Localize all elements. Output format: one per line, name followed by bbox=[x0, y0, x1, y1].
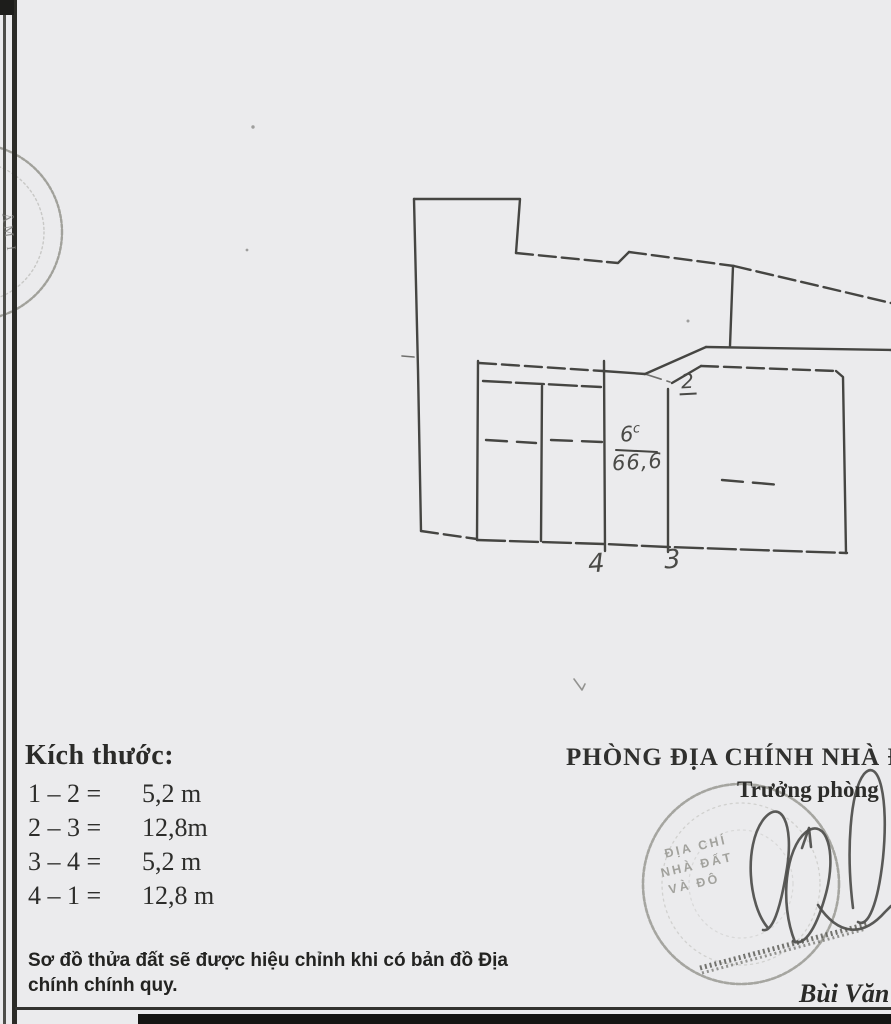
correction-note: Sơ đồ thửa đất sẽ được hiệu chỉnh khi có… bbox=[28, 948, 520, 998]
dimension-row: 2 – 3 = 12,8m bbox=[28, 813, 214, 847]
dimension-value: 5,2 m bbox=[142, 847, 201, 877]
dimension-points: 1 – 2 = bbox=[28, 779, 120, 809]
dimensions-list: 1 – 2 = 5,2 m 2 – 3 = 12,8m 3 – 4 = 5,2 … bbox=[28, 779, 214, 915]
parcel-number-label: 6c bbox=[619, 421, 642, 447]
point-label-2: 2 bbox=[678, 369, 696, 396]
parcel-area-label: 66,6 bbox=[611, 449, 663, 476]
scan-corner-blot bbox=[0, 0, 14, 15]
scan-border-left-inner bbox=[12, 0, 17, 1024]
dimension-row: 1 – 2 = 5,2 m bbox=[28, 779, 214, 813]
scanned-cadastral-document: 6c 66,6 2 3 4 Kích thước: 1 – 2 = 5,2 m … bbox=[0, 0, 891, 1024]
dimension-value: 12,8m bbox=[142, 813, 208, 843]
dimension-value: 5,2 m bbox=[142, 779, 201, 809]
dimension-row: 3 – 4 = 5,2 m bbox=[28, 847, 214, 881]
dimension-points: 4 – 1 = bbox=[28, 881, 120, 911]
office-title: Trưởng phòng bbox=[737, 777, 879, 803]
dimensions-heading: Kích thước: bbox=[25, 740, 174, 772]
dimension-row: 4 – 1 = 12,8 m bbox=[28, 881, 214, 915]
scan-border-left-outer bbox=[3, 0, 6, 1024]
scan-specks bbox=[246, 125, 690, 690]
point-label-3: 3 bbox=[663, 544, 682, 575]
dimension-points: 2 – 3 = bbox=[28, 813, 120, 843]
point-label-4: 4 bbox=[587, 548, 606, 579]
dimension-points: 3 – 4 = bbox=[28, 847, 120, 877]
outer-boundary-lines bbox=[414, 199, 891, 539]
bottom-rule-line bbox=[15, 1007, 891, 1010]
signer-name: Bùi Văn B bbox=[799, 979, 891, 1009]
department-heading: PHÒNG ĐỊA CHÍNH NHÀ Đ bbox=[566, 744, 891, 772]
dimension-value: 12,8 m bbox=[142, 881, 214, 911]
parcel-number-suffix: c bbox=[632, 421, 640, 437]
scan-edge-bar-bottom bbox=[138, 1014, 891, 1024]
